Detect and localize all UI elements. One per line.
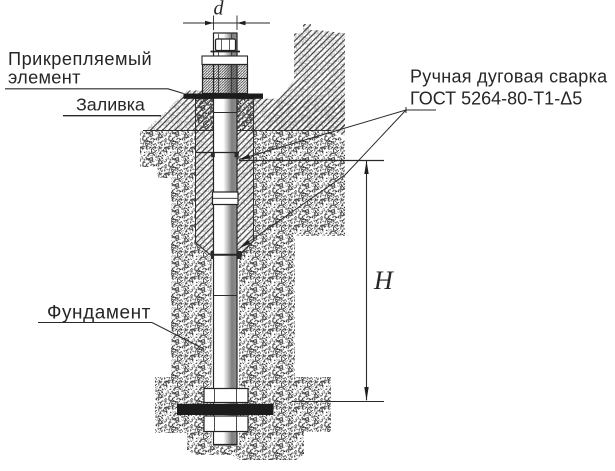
- svg-text:Заливка: Заливка: [76, 95, 145, 115]
- svg-text:ГОСТ 5264-80-Т1-Δ5: ГОСТ 5264-80-Т1-Δ5: [410, 89, 582, 109]
- svg-text:элемент: элемент: [8, 68, 81, 88]
- svg-text:Ручная дуговая сварка: Ручная дуговая сварка: [410, 67, 608, 87]
- svg-text:d: d: [214, 0, 225, 20]
- svg-text:H: H: [373, 266, 394, 295]
- svg-text:Прикрепляемый: Прикрепляемый: [8, 49, 152, 69]
- svg-text:Фундамент: Фундамент: [47, 303, 151, 324]
